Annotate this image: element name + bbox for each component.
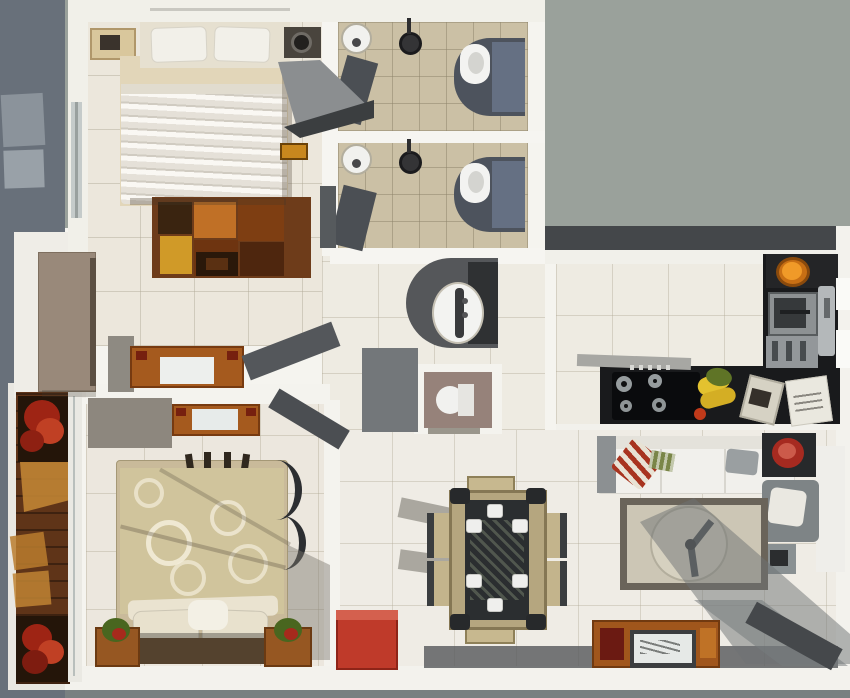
table-corner-br — [526, 614, 546, 630]
kitchen-sink — [818, 286, 835, 356]
armchair-cushion — [767, 487, 808, 528]
top-wall-window-line — [150, 8, 290, 11]
bg-bottom-shadow — [65, 689, 850, 698]
bathrooms-divider-wall — [330, 131, 545, 143]
right-console — [816, 446, 845, 572]
tall-cabinet-shadow — [42, 390, 96, 397]
bed1-duvet-top-fold — [121, 84, 287, 94]
bed1-pillow-right — [213, 26, 270, 63]
sofa-cushion-green — [649, 450, 676, 472]
bathroom1-toilet-tank — [492, 42, 525, 112]
rug1-center-inset — [206, 258, 228, 270]
bed2-cushion — [188, 600, 228, 630]
oven-handle — [780, 310, 810, 314]
tv-stand-right-block — [700, 628, 716, 658]
side-table-small-item — [770, 550, 788, 566]
kitchen-tomato — [694, 408, 706, 420]
balcony-glass-line — [73, 396, 75, 676]
table-corner-tr — [526, 488, 546, 504]
hob-burner-1 — [616, 376, 632, 392]
hob-knobs — [630, 365, 674, 370]
drawer-handle-3 — [800, 341, 806, 361]
bg-left-highlight-2 — [3, 149, 44, 188]
balcony-glass-door — [68, 390, 82, 682]
hob-burner-4 — [652, 398, 666, 412]
kitchen-window-2 — [836, 330, 850, 368]
balcony-plant-top-red-3 — [20, 430, 44, 452]
nightstand-1-item — [100, 35, 120, 50]
kitchen-sink-faucet — [824, 298, 830, 318]
plate-lower-left — [466, 574, 482, 588]
top-wall — [68, 0, 545, 22]
bed2-headboard-shadow — [121, 633, 285, 638]
wc-toilet-tank — [458, 384, 474, 416]
bathroom2-toilet-tank — [492, 161, 525, 228]
rug1-patch-1 — [158, 202, 192, 234]
recipe-sheet-lines — [793, 388, 824, 412]
bench-1 — [280, 143, 308, 160]
table-corner-bl — [450, 614, 470, 630]
wash-basin-tap-1 — [462, 298, 468, 304]
rug1-patch-3 — [238, 199, 284, 241]
drawer-handle-1 — [772, 341, 778, 361]
tv-stand-left-block — [600, 628, 624, 660]
floorplan-canvas — [0, 0, 850, 698]
bathroom2-shower-arm — [407, 139, 411, 153]
bathroom2-shower-head — [399, 151, 422, 174]
bathroom1-toilet-seat — [468, 52, 484, 74]
fruit-bowl-oranges — [782, 262, 802, 280]
bottom-wall — [65, 666, 850, 690]
wall-unit-gadget-dial — [291, 32, 312, 53]
bathroom2-sink-faucet — [352, 159, 361, 168]
dresser-2-knob-right — [246, 408, 256, 416]
bed1-duvet — [121, 84, 287, 204]
bathroom2-toilet-seat — [468, 171, 484, 193]
wash-basin-tap-2 — [462, 312, 468, 318]
sofa-cushion-gray — [725, 448, 759, 475]
bed1-pillow-left — [150, 26, 207, 63]
rug1-patch-6 — [240, 242, 284, 276]
dresser-1-top — [160, 357, 214, 384]
plate-upper-left — [466, 519, 482, 533]
dresser2-shadow — [88, 398, 172, 448]
dresser-1-knob-left — [136, 351, 147, 360]
wc-partition — [362, 348, 418, 432]
dining-chair-left-1-frame — [427, 513, 434, 558]
dining-chair-left-2-frame — [427, 561, 434, 606]
bedroom1-window-frame — [75, 102, 78, 218]
tall-cabinet-edge — [90, 258, 96, 386]
red-cabinet-top-edge — [336, 610, 398, 620]
dresser-2-knob-left — [176, 408, 186, 416]
deck-sunlight-2 — [10, 532, 48, 570]
dresser-2-tv — [192, 409, 238, 430]
bg-left-highlight-1 — [1, 93, 46, 147]
table-corner-tl — [450, 488, 470, 504]
kitchen-top-dark-band — [545, 226, 838, 250]
bathroom1-sink-faucet — [352, 38, 361, 47]
plate-lower-right — [512, 574, 528, 588]
dining-chair-right-1-frame — [560, 513, 567, 558]
balcony-plant-bottom-red-3 — [22, 650, 48, 674]
bed1-foot-shadow — [130, 198, 286, 205]
kitchen-window-1 — [836, 278, 850, 310]
duvet-swirl-5 — [134, 478, 164, 508]
plate-bottom — [487, 598, 503, 612]
hob-burner-3 — [620, 400, 632, 412]
nightstand-2-left-flower — [112, 628, 126, 640]
bathroom1-shower-head — [399, 32, 422, 55]
plate-top — [487, 504, 503, 518]
drawer-handle-2 — [786, 341, 792, 361]
deck-sunlight-3 — [13, 570, 52, 607]
dining-chair-right-2-frame — [560, 561, 567, 606]
rug1-patch-2 — [194, 202, 236, 238]
nightstand-2-right-flower — [284, 628, 298, 640]
plate-upper-right — [512, 519, 528, 533]
tall-cabinet — [38, 252, 96, 392]
wc-threshold — [428, 428, 480, 434]
bathroom1-shower-arm — [407, 18, 411, 34]
corridor-shadow — [320, 186, 336, 248]
bed2-headboard — [121, 638, 285, 664]
hob-burner-2 — [648, 374, 662, 388]
tv-screen-reflection — [640, 640, 680, 654]
rug1-patch-4 — [160, 236, 192, 274]
vase-flowers-detail — [778, 443, 796, 459]
duvet-swirl-3 — [170, 560, 206, 596]
dresser-1-knob-right — [227, 351, 238, 360]
